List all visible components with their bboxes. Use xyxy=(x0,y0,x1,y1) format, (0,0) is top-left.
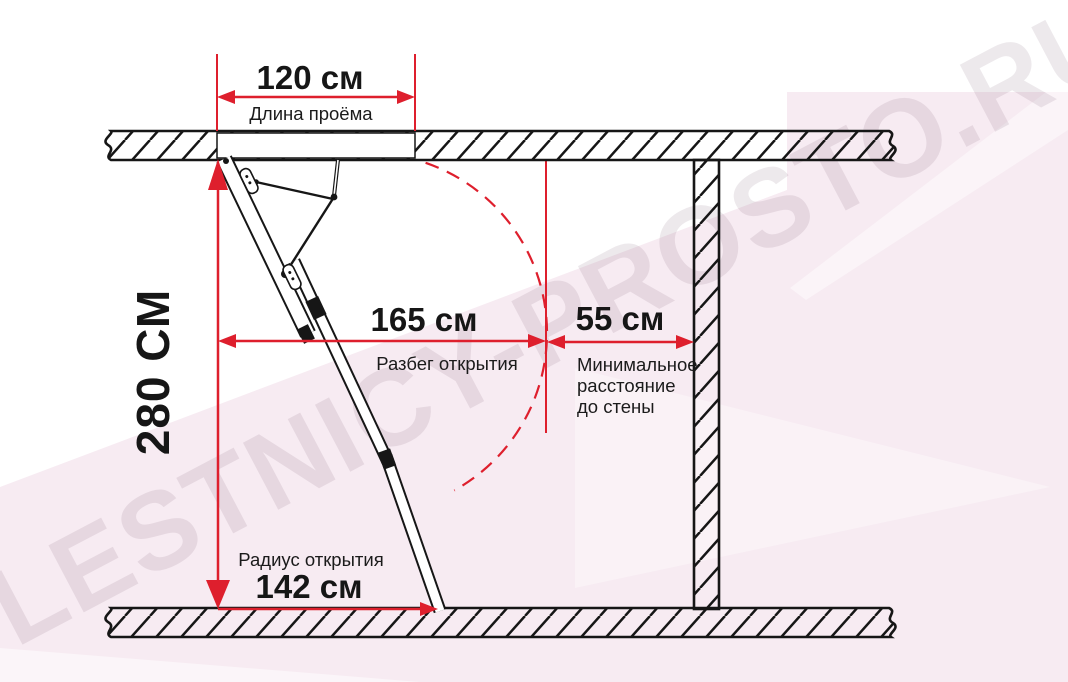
wall-clearance-label-line2: расстояние xyxy=(577,375,676,396)
radius-label: Радиус открытия xyxy=(238,549,383,570)
wall-clearance-value: 55 см xyxy=(576,300,665,337)
trapdoor-hinge xyxy=(223,158,229,164)
attic-ladder-dimension-diagram: LESTNICY-PROSTO.RU xyxy=(0,0,1068,682)
floor-slab xyxy=(105,608,895,637)
wall-clearance-label-line3: до стены xyxy=(577,396,655,417)
run-label: Разбег открытия xyxy=(376,353,518,374)
wall-column xyxy=(694,160,719,609)
height-value: 280 СМ xyxy=(127,289,179,455)
diagram-canvas: LESTNICY-PROSTO.RU xyxy=(0,0,1068,682)
run-value: 165 см xyxy=(371,301,478,338)
wall-clearance-label-line1: Минимальное xyxy=(577,354,698,375)
radius-value: 142 см xyxy=(256,568,363,605)
opening-value: 120 см xyxy=(257,59,364,96)
opening-label: Длина проёма xyxy=(249,103,373,124)
ceiling-slab xyxy=(105,131,895,160)
ceiling-opening xyxy=(217,133,415,158)
linkage-pivot-rod xyxy=(331,194,338,201)
